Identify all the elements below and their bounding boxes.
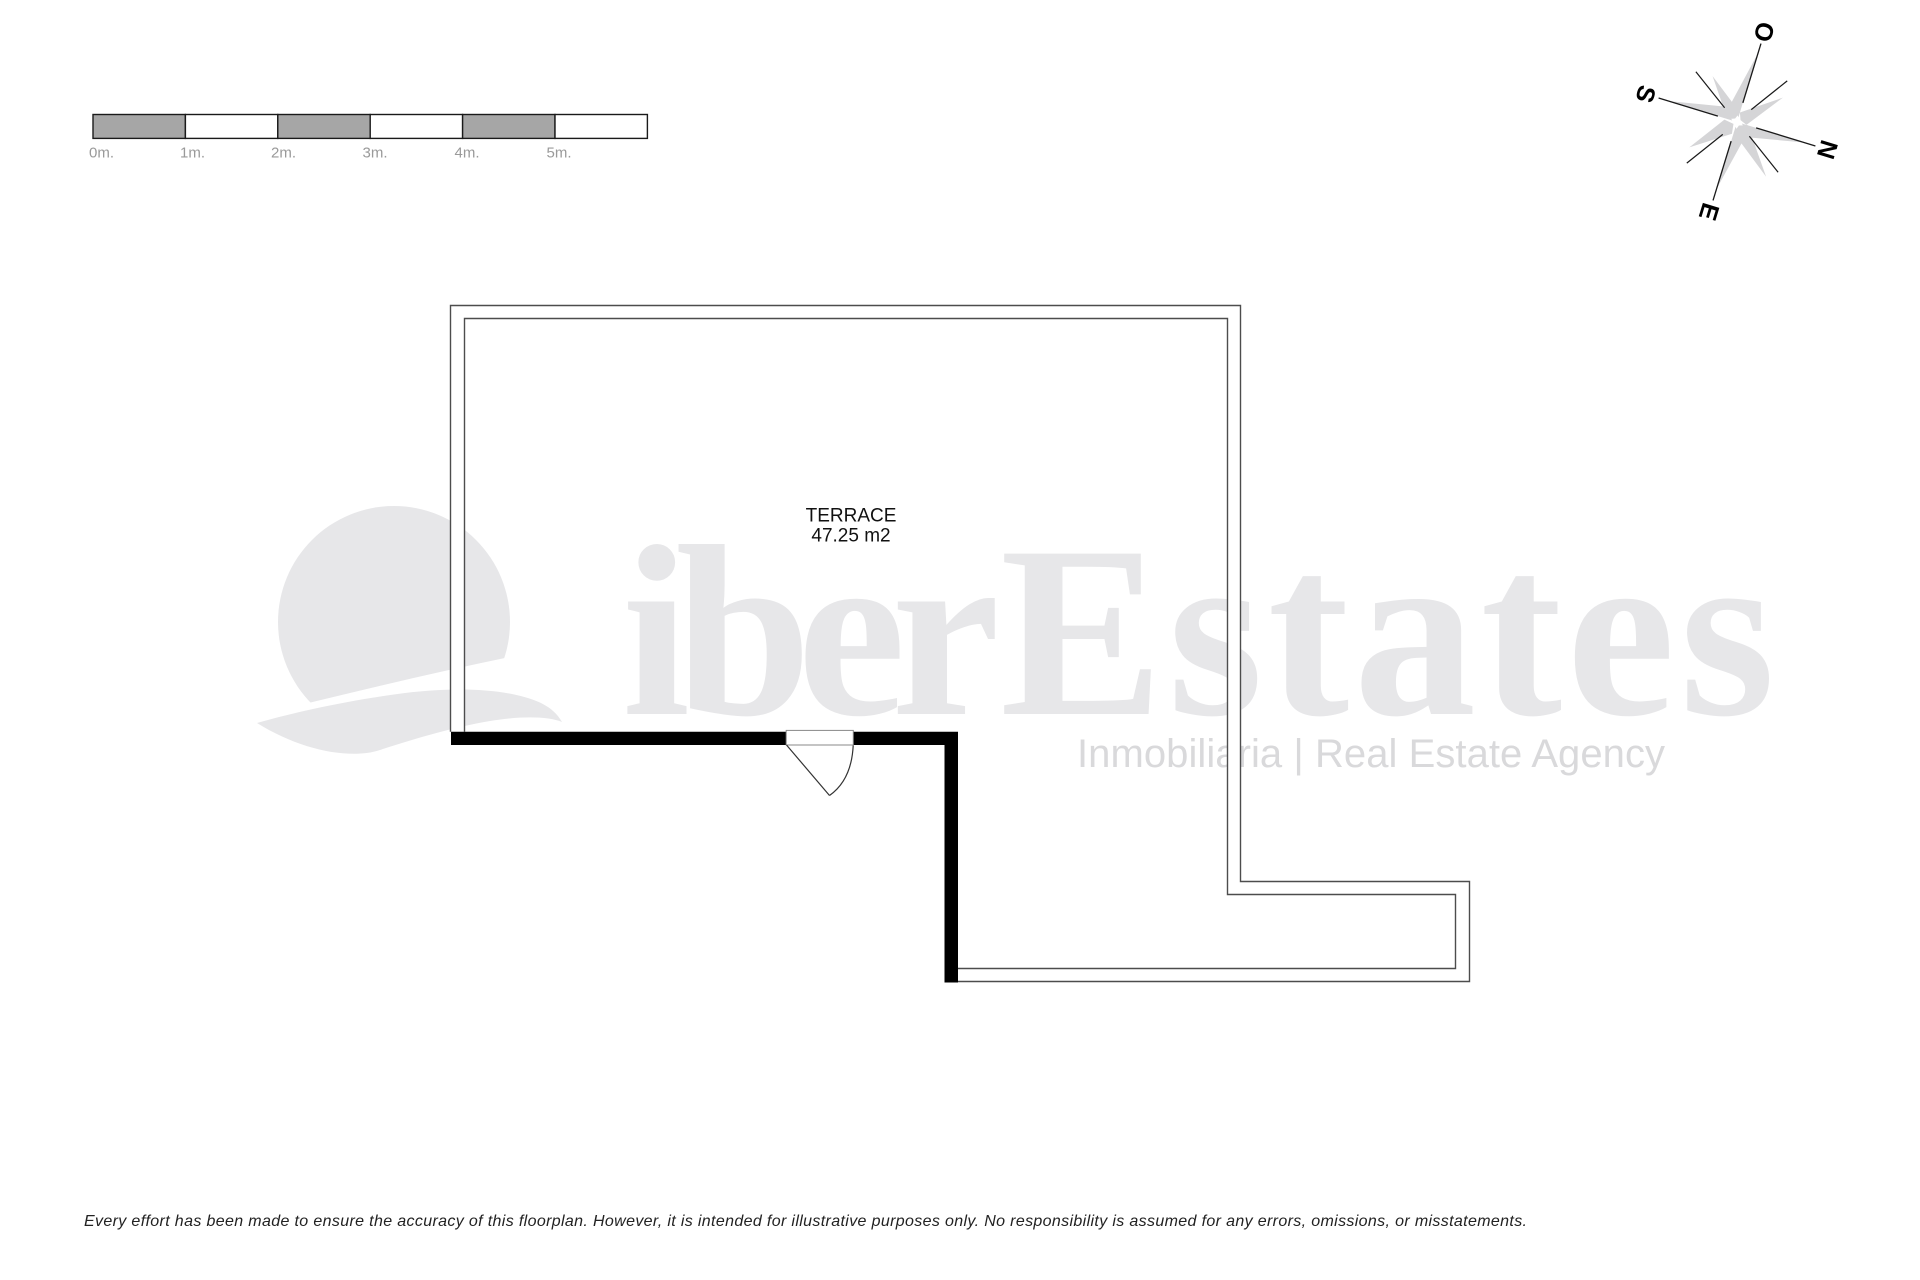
svg-text:S: S xyxy=(1629,82,1661,106)
svg-text:Every effort has been made to: Every effort has been made to ensure the… xyxy=(84,1213,1527,1230)
svg-text:TERRACE: TERRACE xyxy=(806,506,897,527)
svg-text:4m.: 4m. xyxy=(455,145,480,162)
svg-text:O: O xyxy=(1747,18,1779,45)
svg-text:3m.: 3m. xyxy=(363,145,388,162)
svg-text:47.25 m2: 47.25 m2 xyxy=(811,526,890,547)
svg-text:5m.: 5m. xyxy=(547,145,572,162)
svg-text:2m.: 2m. xyxy=(271,145,296,162)
svg-text:E: E xyxy=(1693,200,1725,224)
svg-text:N: N xyxy=(1811,137,1843,162)
svg-text:Inmobiliaria | Real Estate Age: Inmobiliaria | Real Estate Agency xyxy=(1077,732,1665,776)
svg-text:iberEstates: iberEstates xyxy=(622,496,1775,767)
svg-text:1m.: 1m. xyxy=(180,145,205,162)
svg-text:0m.: 0m. xyxy=(89,145,114,162)
